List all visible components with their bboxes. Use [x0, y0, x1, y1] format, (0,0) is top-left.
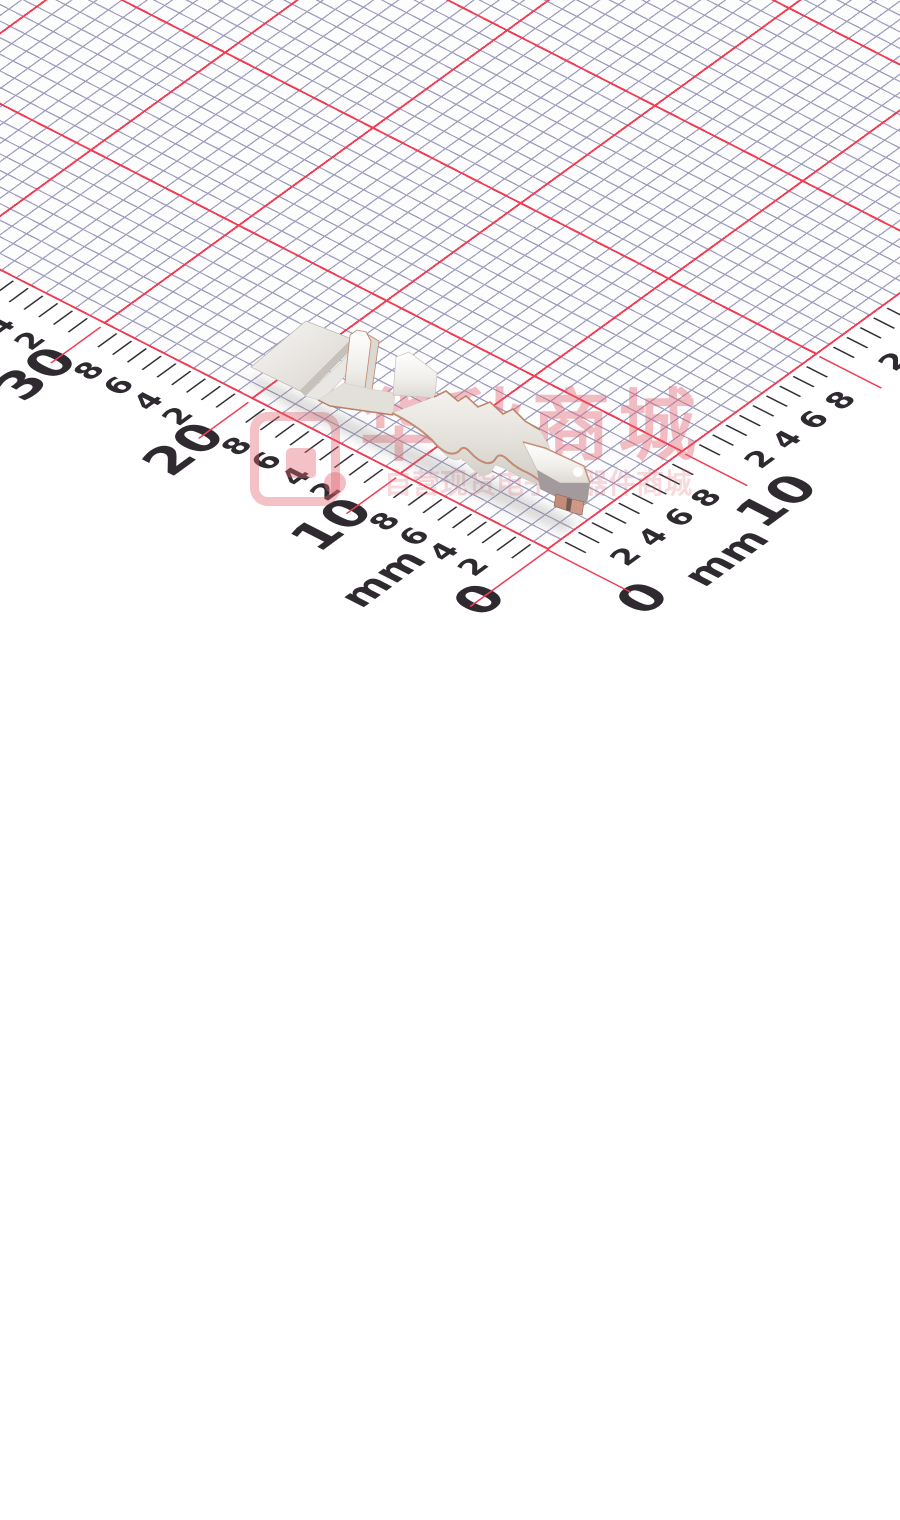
crimp-terminal — [0, 0, 900, 900]
photo-scene: 246824682468240102030mm2468246824010mm 华… — [0, 0, 900, 900]
terminal-endbox-highlight — [573, 467, 583, 477]
terminal-flag-plate — [393, 352, 437, 398]
terminal-prong-right — [570, 499, 584, 515]
